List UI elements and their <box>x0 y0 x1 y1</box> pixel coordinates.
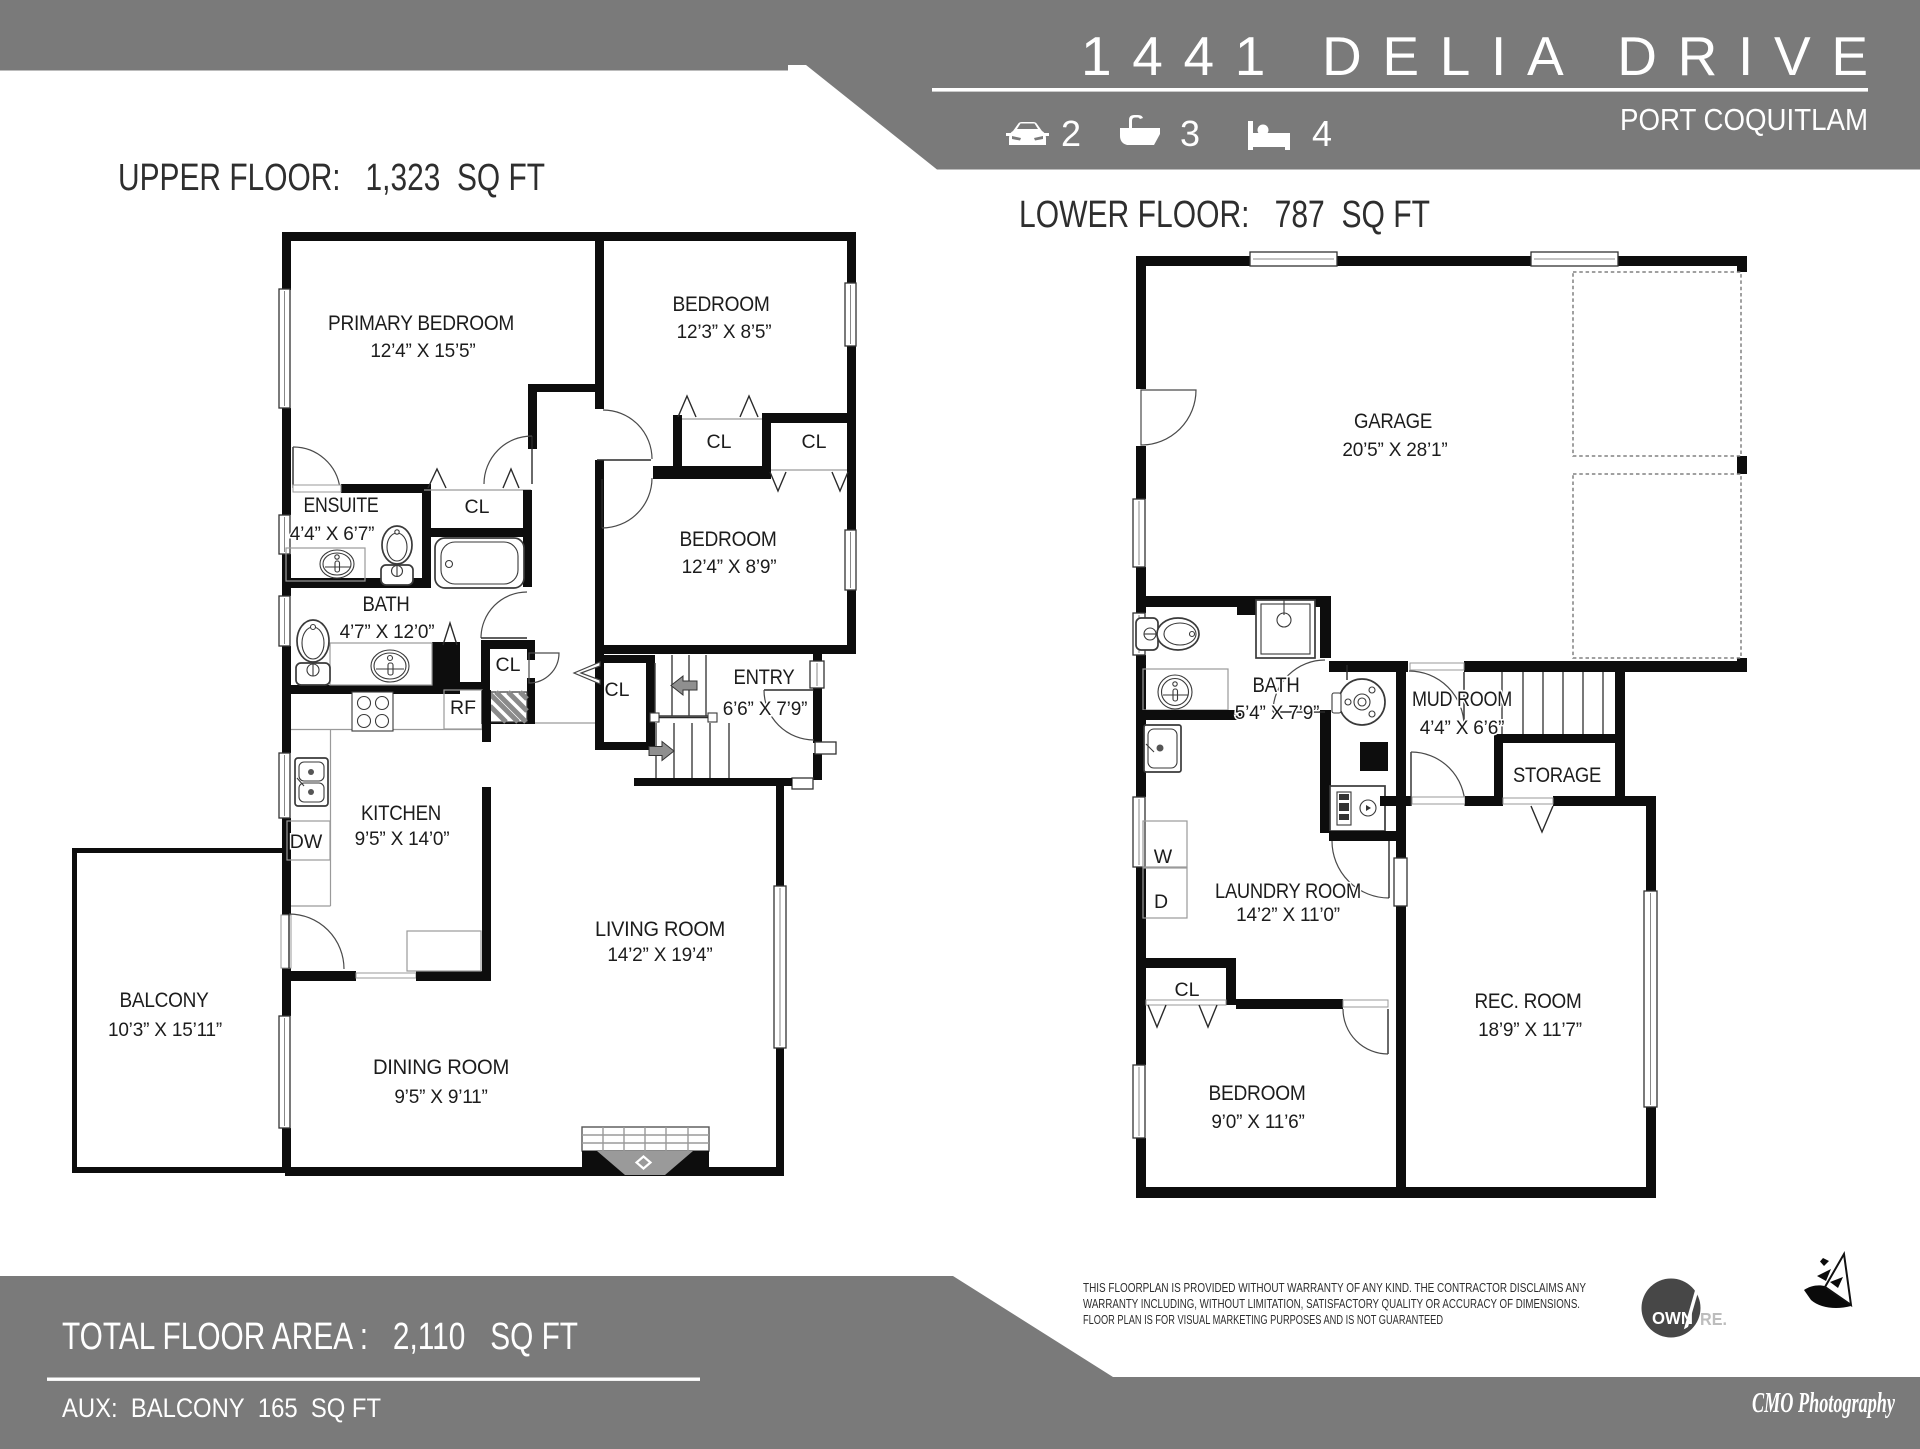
svg-text:GARAGE: GARAGE <box>1354 409 1432 433</box>
svg-text:2: 2 <box>1061 113 1081 154</box>
svg-text:OWN: OWN <box>1652 1308 1693 1328</box>
svg-text:9’0” X 11’6”: 9’0” X 11’6” <box>1211 1112 1304 1133</box>
svg-text:CL: CL <box>465 496 490 518</box>
svg-text:AUX: BALCONY 165 SQ FT: AUX: BALCONY 165 SQ FT <box>62 1393 381 1423</box>
svg-text:STORAGE: STORAGE <box>1513 763 1601 787</box>
svg-text:LOWER FLOOR: 787 SQ FT: LOWER FLOOR: 787 SQ FT <box>1019 194 1430 236</box>
svg-text:14’2” X 11’0”: 14’2” X 11’0” <box>1236 905 1340 926</box>
svg-text:LIVING ROOM: LIVING ROOM <box>595 917 725 941</box>
svg-text:9’5” X 9’11”: 9’5” X 9’11” <box>394 1087 487 1108</box>
svg-text:6’6” X 7’9”: 6’6” X 7’9” <box>723 699 807 720</box>
svg-text:4: 4 <box>1312 113 1332 154</box>
svg-text:14’2” X 19’4”: 14’2” X 19’4” <box>607 945 712 966</box>
svg-text:RE.: RE. <box>1700 1309 1727 1329</box>
svg-text:4’4” X 6’7”: 4’4” X 6’7” <box>290 524 374 545</box>
svg-text:CL: CL <box>605 679 630 701</box>
svg-text:BEDROOM: BEDROOM <box>673 292 770 316</box>
svg-text:CL: CL <box>496 654 521 676</box>
svg-text:5’4” X 7’9”: 5’4” X 7’9” <box>1235 703 1319 724</box>
svg-text:12’3” X 8’5”: 12’3” X 8’5” <box>677 322 772 343</box>
svg-text:BEDROOM: BEDROOM <box>680 527 777 551</box>
svg-text:PORT COQUITLAM: PORT COQUITLAM <box>1620 102 1868 137</box>
svg-text:4’4” X 6’6”: 4’4” X 6’6” <box>1420 718 1504 739</box>
svg-text:20’5” X 28’1”: 20’5” X 28’1” <box>1342 440 1447 461</box>
svg-text:DW: DW <box>290 831 323 853</box>
svg-text:BATH: BATH <box>363 592 410 616</box>
svg-text:9’5” X 14’0”: 9’5” X 14’0” <box>355 829 450 850</box>
svg-text:CL: CL <box>707 431 732 453</box>
svg-text:DINING ROOM: DINING ROOM <box>373 1055 509 1079</box>
svg-text:12’4” X 8’9”: 12’4” X 8’9” <box>682 557 777 578</box>
svg-text:UPPER FLOOR: 1,323 SQ FT: UPPER FLOOR: 1,323 SQ FT <box>118 157 545 199</box>
svg-text:ENSUITE: ENSUITE <box>304 493 379 517</box>
svg-text:3: 3 <box>1180 113 1200 154</box>
svg-text:MUD ROOM: MUD ROOM <box>1412 687 1512 711</box>
svg-text:FLOOR PLAN IS FOR VISUAL MARKE: FLOOR PLAN IS FOR VISUAL MARKETING PURPO… <box>1083 1312 1443 1327</box>
svg-text:WARRANTY INCLUDING, WITHOUT LI: WARRANTY INCLUDING, WITHOUT LIMITATION, … <box>1083 1296 1580 1311</box>
svg-text:RF: RF <box>450 697 476 719</box>
svg-text:18’9” X 11’7”: 18’9” X 11’7” <box>1478 1020 1582 1041</box>
svg-text:CL: CL <box>802 431 827 453</box>
svg-text:CMO Photography: CMO Photography <box>1752 1387 1895 1419</box>
svg-text:BEDROOM: BEDROOM <box>1209 1081 1306 1105</box>
svg-text:D: D <box>1154 891 1168 913</box>
svg-text:ENTRY: ENTRY <box>734 665 795 689</box>
svg-text:LAUNDRY ROOM: LAUNDRY ROOM <box>1215 879 1361 903</box>
svg-text:KITCHEN: KITCHEN <box>361 801 441 825</box>
svg-text:TOTAL FLOOR AREA : 2,110 S: TOTAL FLOOR AREA : 2,110 SQ FT <box>62 1316 578 1358</box>
svg-text:CL: CL <box>1175 979 1200 1001</box>
svg-text:12’4” X 15’5”: 12’4” X 15’5” <box>370 341 475 362</box>
svg-text:PRIMARY BEDROOM: PRIMARY BEDROOM <box>328 311 514 335</box>
svg-text:REC. ROOM: REC. ROOM <box>1475 989 1582 1013</box>
svg-text:BATH: BATH <box>1253 673 1300 697</box>
svg-text:10’3” X 15’11”: 10’3” X 15’11” <box>108 1020 222 1041</box>
svg-text:W: W <box>1154 846 1173 868</box>
svg-text:4’7” X 12’0”: 4’7” X 12’0” <box>340 622 435 643</box>
svg-text:THIS FLOORPLAN IS PROVIDED WIT: THIS FLOORPLAN IS PROVIDED WITHOUT WARRA… <box>1083 1280 1586 1295</box>
svg-text:BALCONY: BALCONY <box>120 988 209 1012</box>
